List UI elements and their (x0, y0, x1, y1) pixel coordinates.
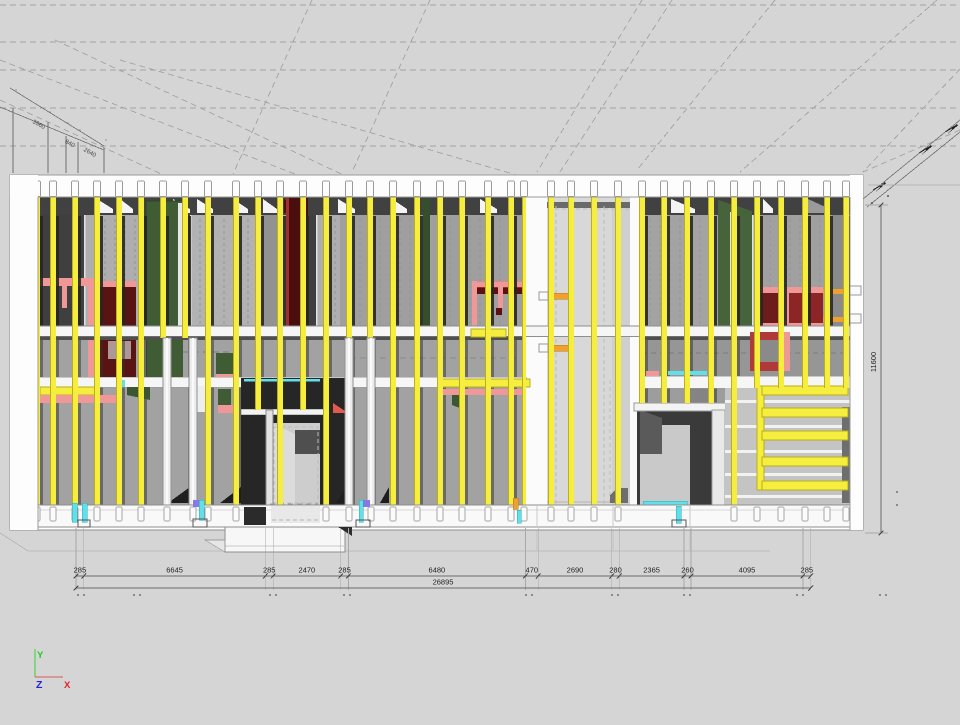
svg-text:26895: 26895 (433, 578, 454, 587)
svg-text:260: 260 (681, 566, 694, 575)
svg-text:285: 285 (338, 566, 351, 575)
svg-text:280: 280 (609, 566, 622, 575)
svg-text:4095: 4095 (739, 566, 756, 575)
svg-text:285: 285 (74, 566, 87, 575)
svg-text:6645: 6645 (166, 566, 183, 575)
svg-text:470: 470 (526, 566, 539, 575)
svg-text:285: 285 (263, 566, 276, 575)
svg-text:2365: 2365 (643, 566, 660, 575)
svg-text:6480: 6480 (429, 566, 446, 575)
svg-text:2470: 2470 (299, 566, 316, 575)
svg-text:Z: Z (36, 679, 43, 691)
svg-text:X: X (64, 680, 71, 691)
svg-text:285: 285 (801, 566, 814, 575)
svg-text:11600: 11600 (869, 352, 878, 372)
svg-text:Y: Y (37, 650, 44, 661)
svg-text:2690: 2690 (567, 566, 584, 575)
